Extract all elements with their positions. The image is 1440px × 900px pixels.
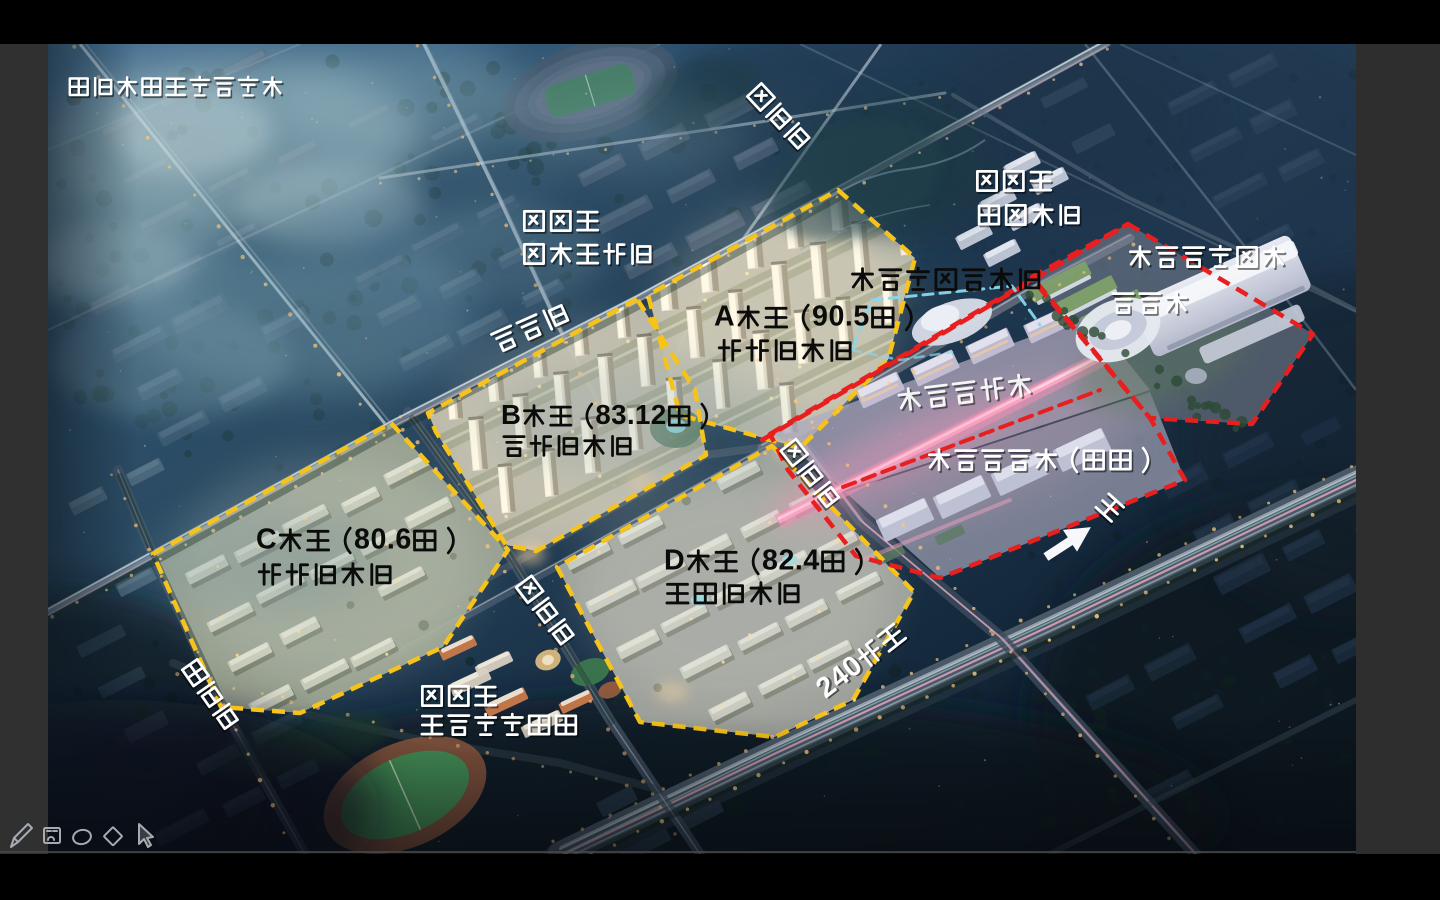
- svg-text:80.6: 80.6: [354, 524, 411, 556]
- svg-text:A: A: [714, 301, 735, 333]
- svg-text:82.4: 82.4: [762, 545, 819, 577]
- svg-text:83.12: 83.12: [595, 399, 666, 430]
- svg-text:90.5: 90.5: [812, 301, 869, 333]
- svg-text:B: B: [501, 399, 521, 430]
- svg-text:C: C: [256, 524, 277, 556]
- svg-text:D: D: [664, 545, 685, 577]
